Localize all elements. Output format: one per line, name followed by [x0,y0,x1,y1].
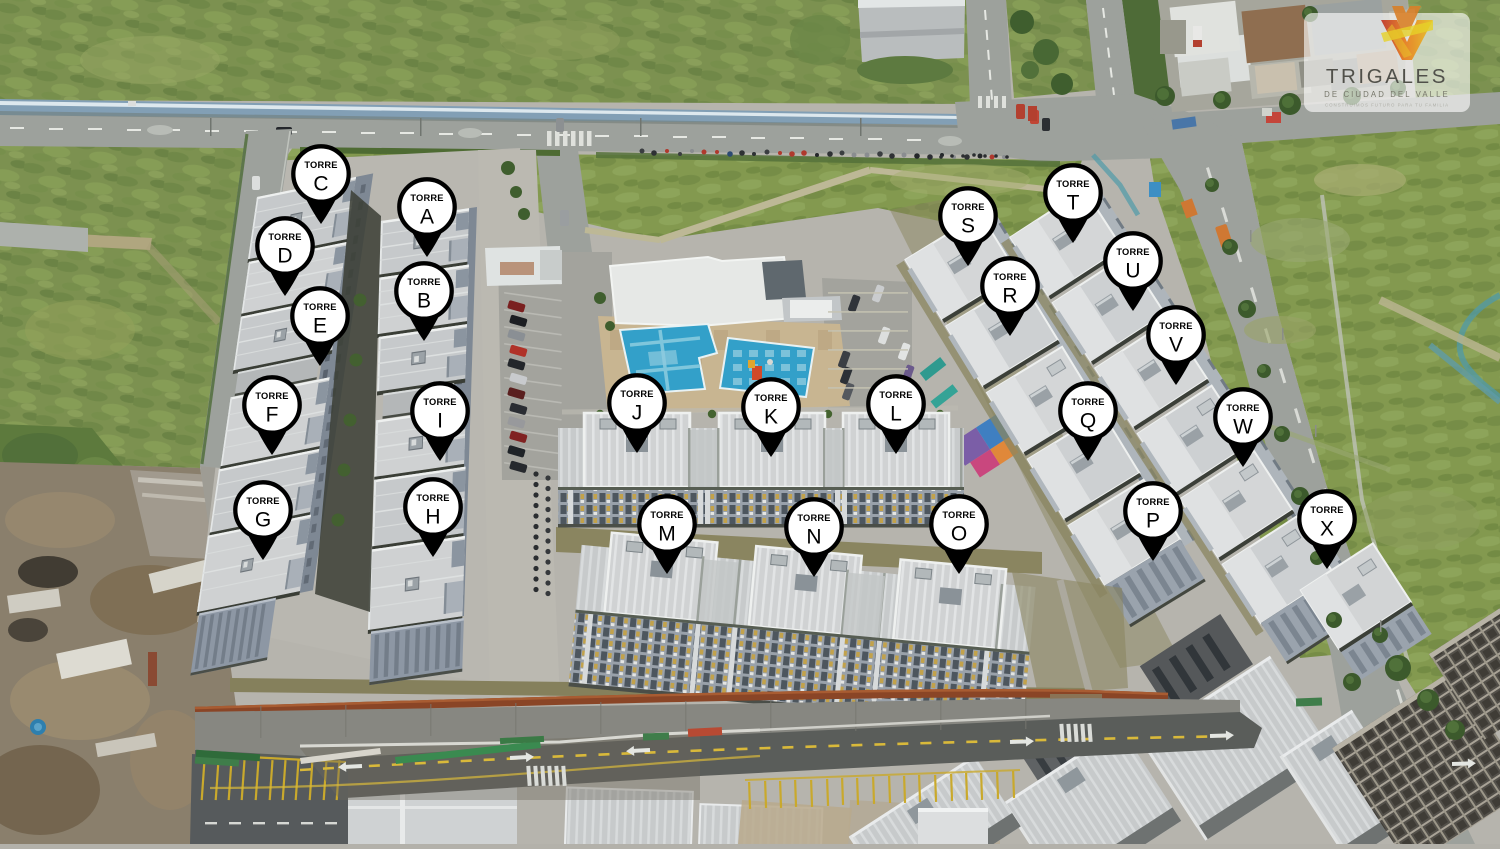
svg-text:TORRE: TORRE [1310,505,1343,515]
svg-text:TORRE: TORRE [754,393,787,403]
svg-text:TORRE: TORRE [304,160,337,170]
svg-text:L: L [890,403,902,426]
svg-text:Q: Q [1080,410,1096,433]
svg-text:O: O [951,523,967,546]
svg-text:TORRE: TORRE [407,277,440,287]
svg-text:D: D [277,245,292,268]
svg-text:TORRE: TORRE [1159,321,1192,331]
svg-text:M: M [658,523,676,546]
svg-text:TRIGALES: TRIGALES [1326,65,1448,88]
svg-text:TORRE: TORRE [1071,397,1104,407]
svg-text:P: P [1146,510,1160,533]
svg-text:TORRE: TORRE [797,513,830,523]
svg-text:S: S [961,215,975,238]
svg-text:TORRE: TORRE [416,493,449,503]
svg-text:TORRE: TORRE [1116,247,1149,257]
svg-text:B: B [417,290,431,313]
svg-text:W: W [1233,416,1253,439]
svg-text:G: G [255,509,271,532]
svg-text:U: U [1125,260,1140,283]
svg-text:TORRE: TORRE [879,390,912,400]
svg-text:TORRE: TORRE [423,397,456,407]
svg-text:CONSTRUIMOS FUTURO PARA TU FAM: CONSTRUIMOS FUTURO PARA TU FAMILIA [1325,103,1449,108]
svg-text:J: J [632,402,643,425]
svg-text:A: A [420,206,434,229]
svg-text:TORRE: TORRE [268,232,301,242]
svg-text:I: I [437,410,443,433]
svg-text:TORRE: TORRE [1136,497,1169,507]
svg-text:R: R [1002,285,1017,308]
svg-text:TORRE: TORRE [942,510,975,520]
svg-text:TORRE: TORRE [1056,179,1089,189]
svg-text:V: V [1169,334,1183,357]
svg-text:X: X [1320,518,1334,541]
svg-text:TORRE: TORRE [951,202,984,212]
svg-text:E: E [313,315,327,338]
svg-text:K: K [764,406,778,429]
svg-text:TORRE: TORRE [303,302,336,312]
svg-text:DE CIUDAD DEL VALLE: DE CIUDAD DEL VALLE [1324,90,1450,99]
svg-text:H: H [425,506,440,529]
svg-text:TORRE: TORRE [650,510,683,520]
svg-text:TORRE: TORRE [1226,403,1259,413]
svg-text:C: C [313,173,328,196]
svg-text:TORRE: TORRE [255,391,288,401]
svg-text:TORRE: TORRE [620,389,653,399]
svg-text:T: T [1067,192,1080,215]
svg-text:TORRE: TORRE [993,272,1026,282]
svg-text:TORRE: TORRE [410,193,443,203]
svg-text:TORRE: TORRE [246,496,279,506]
svg-text:F: F [266,404,279,427]
svg-text:N: N [806,526,821,549]
